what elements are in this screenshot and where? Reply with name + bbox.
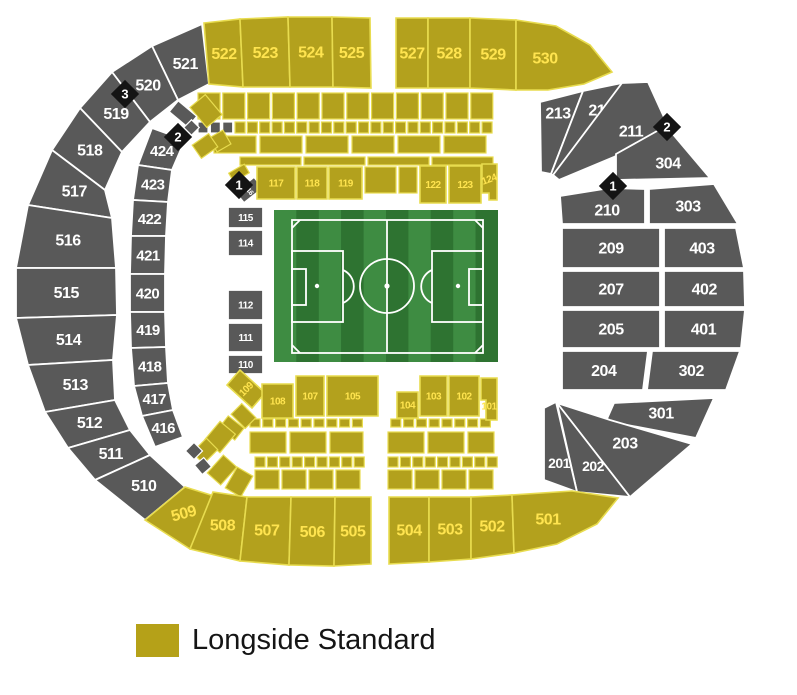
section-101[interactable]: 101 (481, 378, 498, 420)
section-115[interactable]: 115 (228, 207, 263, 228)
section-420[interactable]: 420 (130, 274, 165, 312)
entrance-marker-label: 2 (174, 130, 181, 145)
section-401[interactable]: 401 (664, 310, 745, 348)
section-528[interactable]: 528 (428, 18, 470, 88)
section-503[interactable]: 503 (429, 497, 471, 562)
section-505[interactable]: 505 (334, 497, 371, 566)
section-124[interactable]: 124 (480, 164, 499, 200)
entrance-marker-label: 1 (235, 178, 242, 193)
section-502[interactable]: 502 (471, 495, 514, 559)
football-pitch (274, 210, 498, 362)
section-110[interactable]: 110 (228, 355, 263, 374)
entrance-marker-label: 1 (609, 179, 616, 194)
section-527[interactable]: 527 (396, 18, 428, 88)
section-524[interactable]: 524 (288, 17, 333, 87)
section-104[interactable]: 104 (397, 392, 418, 418)
section-210[interactable]: 210 (560, 188, 645, 224)
section-514[interactable]: 514 (16, 315, 117, 365)
section-403[interactable]: 403 (664, 228, 744, 268)
section-207[interactable]: 207 (562, 271, 660, 307)
section-421[interactable]: 421 (130, 236, 166, 274)
section-530[interactable]: 530 (516, 20, 612, 90)
section-105[interactable]: 105 (327, 376, 378, 416)
seat-map-page: 5215205195185175165155145135125115105225… (0, 0, 797, 695)
section-209[interactable]: 209 (562, 228, 660, 268)
section-423[interactable]: 423 (133, 165, 172, 202)
section-103[interactable]: 103 (420, 376, 447, 416)
section-529[interactable]: 529 (470, 18, 516, 90)
section-422[interactable]: 422 (131, 200, 168, 236)
section-102[interactable]: 102 (449, 376, 479, 416)
section-205[interactable]: 205 (562, 310, 660, 348)
section-525[interactable]: 525 (332, 17, 371, 88)
section-109[interactable]: 109 (227, 370, 265, 408)
section-522[interactable]: 522 (204, 19, 243, 87)
section-111[interactable]: 111 (228, 323, 263, 352)
section-402[interactable]: 402 (664, 271, 745, 307)
section-523[interactable]: 523 (240, 17, 290, 87)
section-108[interactable]: 108 (262, 384, 293, 418)
legend-label: Longside Standard (192, 624, 435, 657)
section-506[interactable]: 506 (289, 497, 335, 566)
section-122[interactable]: 122 (420, 166, 446, 203)
section-418[interactable]: 418 (131, 347, 168, 386)
legend-swatch (136, 624, 179, 657)
section-123[interactable]: 123 (449, 166, 481, 203)
section-303[interactable]: 303 (649, 184, 738, 224)
section-119[interactable]: 119 (329, 167, 362, 199)
section-117[interactable]: 117 (257, 167, 295, 199)
section-107[interactable]: 107 (296, 376, 324, 416)
section-416[interactable]: 416 (142, 410, 183, 447)
section-114[interactable]: 114 (228, 230, 263, 256)
section-112[interactable]: 112 (228, 290, 263, 320)
legend: Longside Standard (136, 624, 435, 657)
section-302[interactable]: 302 (647, 351, 740, 390)
section-204[interactable]: 204 (562, 351, 648, 390)
section-419[interactable]: 419 (130, 312, 166, 348)
stadium-map-svg: 5215205195185175165155145135125115105225… (0, 0, 797, 695)
entrance-marker-label: 3 (121, 87, 128, 102)
section-504[interactable]: 504 (389, 497, 429, 564)
section-118[interactable]: 118 (297, 167, 327, 199)
entrance-marker-label: 2 (663, 120, 670, 135)
section-501[interactable]: 501 (512, 491, 618, 553)
section-515[interactable]: 515 (16, 268, 117, 318)
section-507[interactable]: 507 (240, 497, 291, 565)
